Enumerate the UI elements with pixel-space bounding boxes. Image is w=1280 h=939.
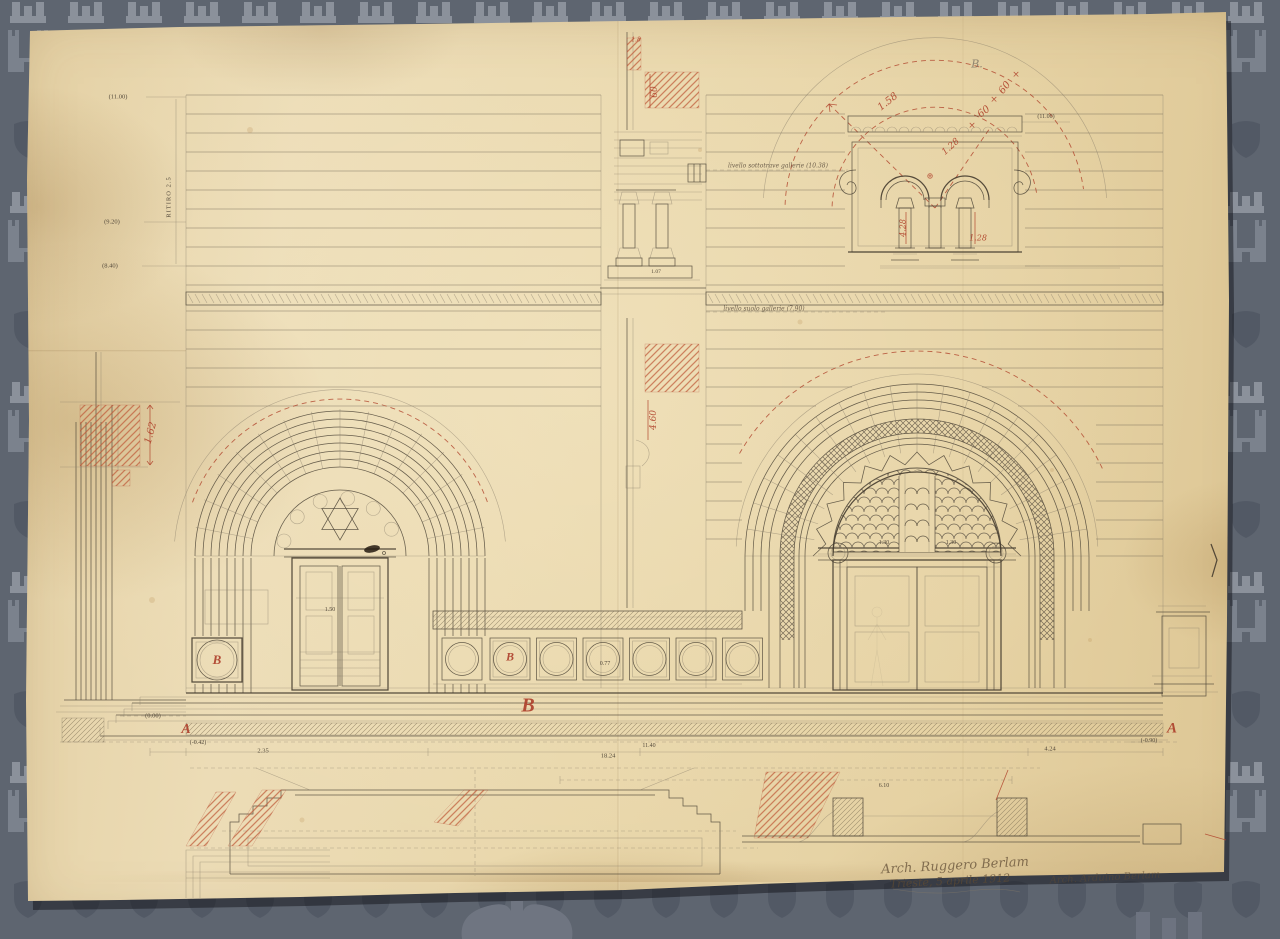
center-mark: ⊕ xyxy=(927,172,934,181)
section-letter-a-right: A xyxy=(1167,721,1177,738)
dim-2-35: 2.35 xyxy=(257,748,268,755)
level-9-20: (9.20) xyxy=(104,219,120,226)
level-0-00: (0.00) xyxy=(145,713,161,720)
medallion-letter-b: B xyxy=(506,650,514,665)
scanned-architectural-drawing: (11.00)RITIRO 2.5(9.20)(8.40)1.62(0.00)A… xyxy=(0,0,1280,939)
level-minus-0-90: (-0.90) xyxy=(1141,738,1158,744)
dim-60-section: 60 xyxy=(650,86,660,97)
dim-11-40: 11.40 xyxy=(642,743,655,749)
zone-letter-b-large: B xyxy=(521,695,534,718)
annotation-layer: (11.00)RITIRO 2.5(9.20)(8.40)1.62(0.00)A… xyxy=(0,0,1280,939)
ritiro-note: RITIRO 2.5 xyxy=(166,176,173,217)
dim-0-77: 0.77 xyxy=(600,661,611,667)
dim-60-lower: 60 xyxy=(976,104,993,121)
detail-label-b: B. xyxy=(971,58,983,71)
section-letter-a-left: A xyxy=(181,722,190,738)
level-minus-0-42: (-0.42) xyxy=(190,740,207,746)
level-8-40-left: (8.40) xyxy=(102,263,118,270)
dim-4-28-column: 4.28 xyxy=(899,219,908,237)
dim-4-60: 4.60 xyxy=(649,410,659,430)
cross-mark-3: × xyxy=(968,121,976,131)
dim-1-28-radial: 1.28 xyxy=(940,137,962,158)
dim-1-58: 1.58 xyxy=(876,91,900,113)
signature-architect-2: Arch. Arduino Berlam xyxy=(1049,870,1160,887)
dim-1-8-section: 1.8 xyxy=(631,37,641,44)
dim-18-24: 18.24 xyxy=(601,753,616,760)
dim-1-50-door: 1.50 xyxy=(325,607,336,613)
dim-4-24: 4.24 xyxy=(1044,746,1055,753)
dim-6-10: 6.10 xyxy=(879,783,890,789)
level-11-00-left: (11.00) xyxy=(109,94,128,101)
dim-1-62: 1.62 xyxy=(143,421,159,445)
level-11-00-right: (11.00) xyxy=(1037,114,1054,120)
note-livello-suolo: livello suolo gallerie (7.90) xyxy=(723,306,804,313)
dim-1-30-right: 1.30 xyxy=(946,540,957,546)
cross-mark-2: × xyxy=(990,95,998,105)
cross-mark-1: × xyxy=(1012,70,1020,80)
note-livello-sottotrave: livello sottotrave gallerie (10.38) xyxy=(728,163,828,170)
dim-1-28-column: 1.28 xyxy=(969,234,987,243)
dim-1-30-left: 1.30 xyxy=(879,540,890,546)
medallion-letter-b-left: B xyxy=(213,652,222,668)
dim-60-upper: 60 xyxy=(997,80,1014,97)
dim-1-07: 1.07 xyxy=(651,269,661,275)
